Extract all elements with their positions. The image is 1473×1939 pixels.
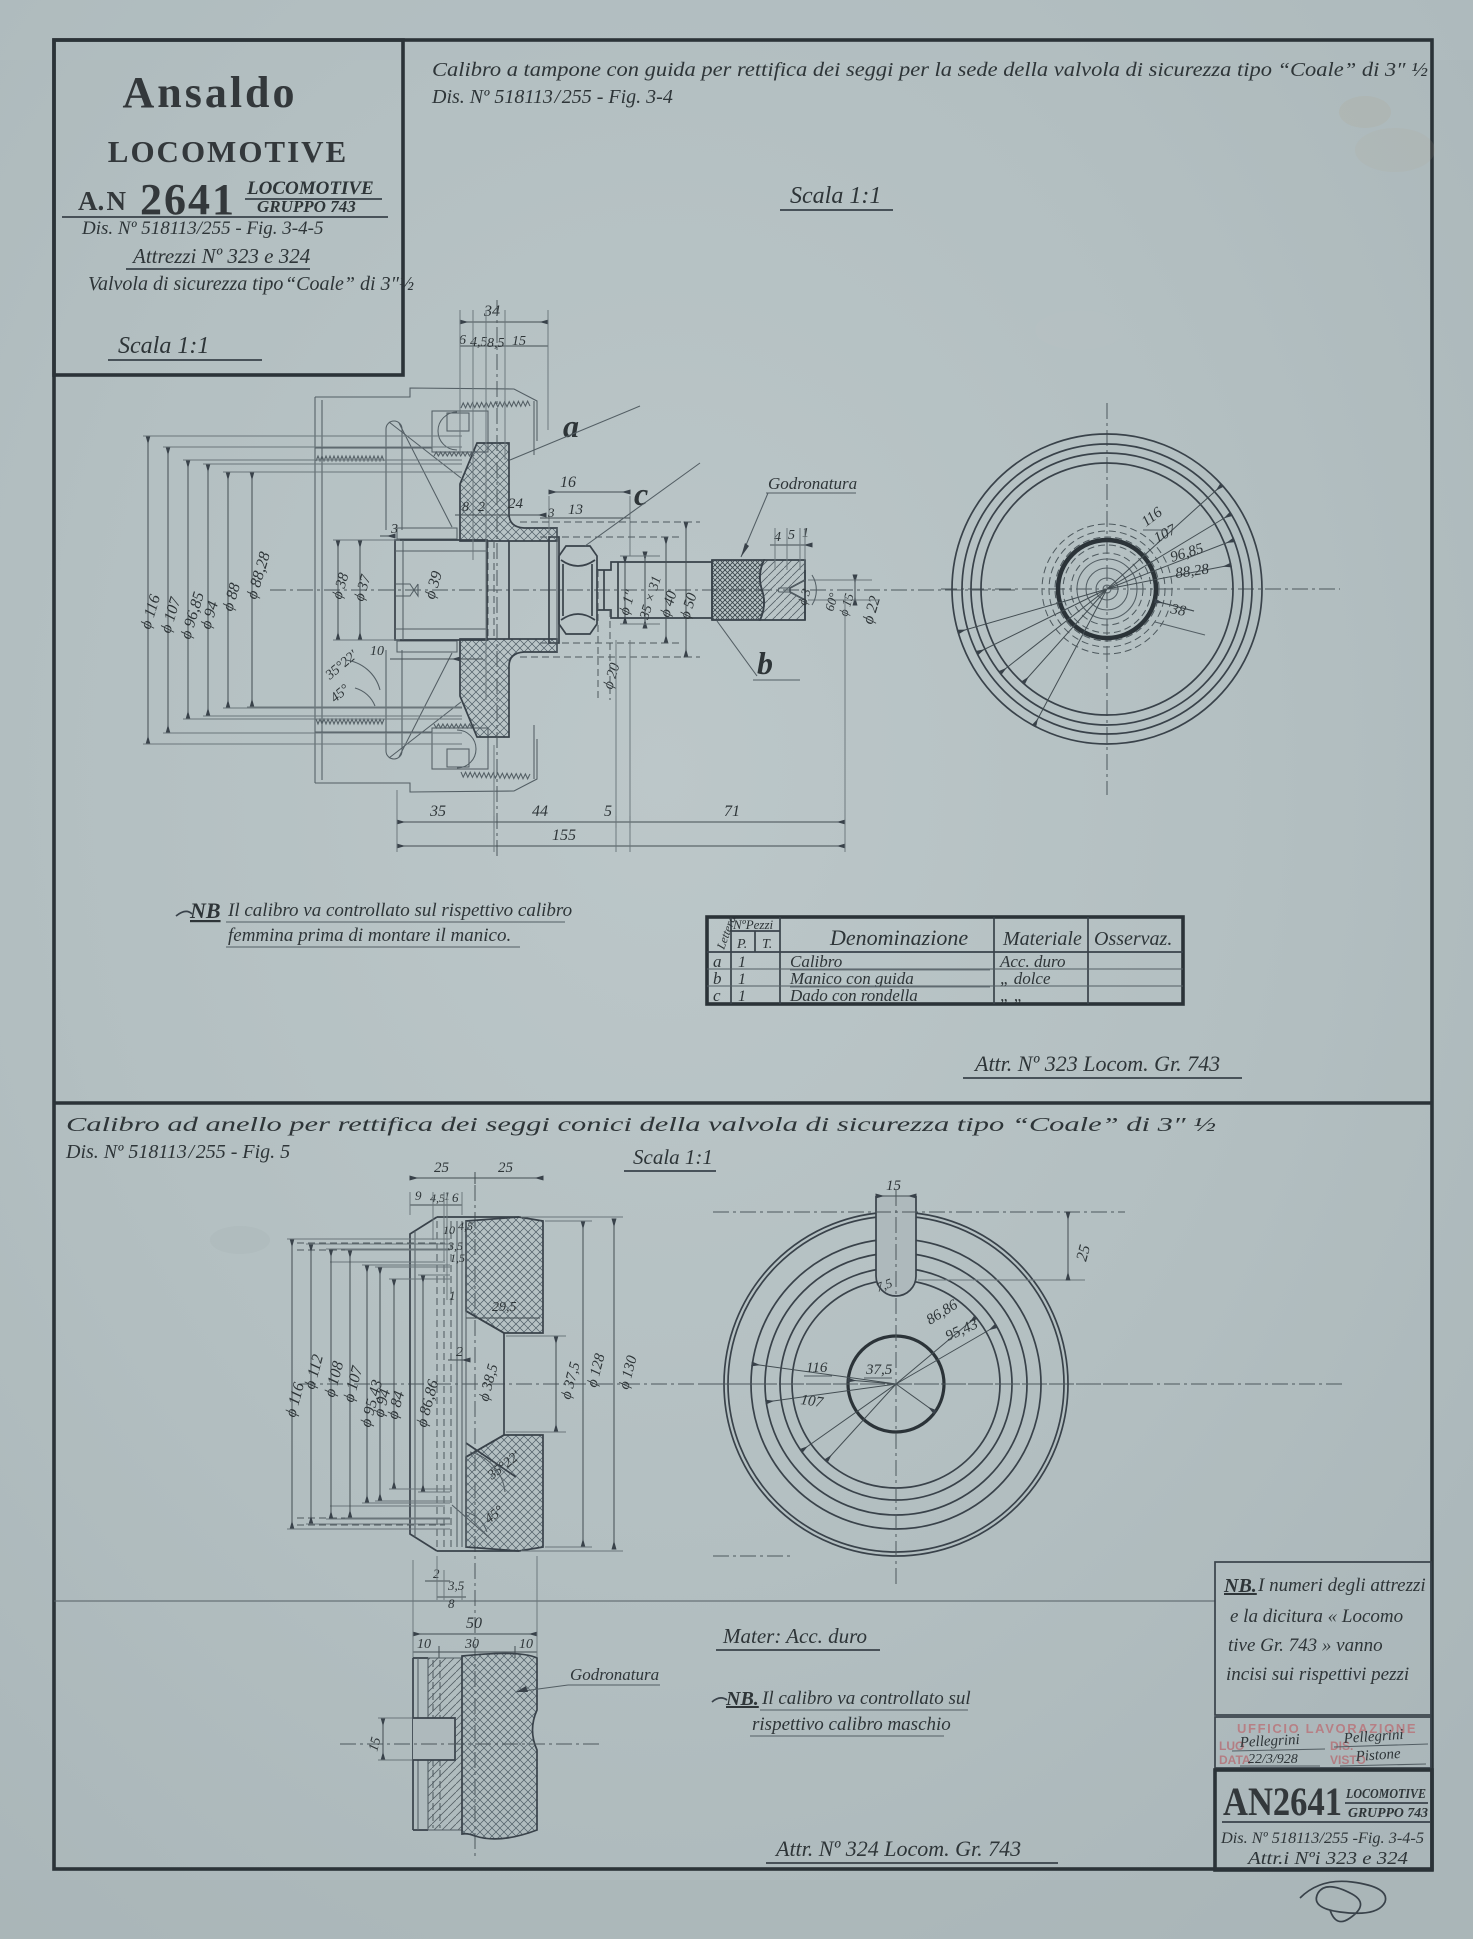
svg-text:GRUPPO 743: GRUPPO 743 [257, 197, 356, 216]
svg-text:5: 5 [788, 528, 795, 543]
svg-text:16: 16 [560, 474, 576, 491]
svg-text:Materiale: Materiale [1002, 928, 1082, 950]
svg-text:c: c [634, 476, 648, 512]
svg-text:1: 1 [738, 954, 746, 971]
svg-text:3: 3 [547, 505, 555, 520]
svg-text:25: 25 [434, 1160, 450, 1176]
svg-text:Valvola di sicurezza tipo “Coa: Valvola di sicurezza tipo “Coale” di 3″½ [88, 273, 414, 295]
svg-text:GRUPPO 743: GRUPPO 743 [1348, 1806, 1428, 1821]
svg-text:DATA: DATA [1219, 1753, 1251, 1767]
svg-text:6: 6 [452, 1190, 459, 1205]
svg-text:Dis. Nº 518113 / 255 - Fig. 3-: Dis. Nº 518113 / 255 - Fig. 3-4 [431, 86, 673, 108]
svg-text:116: 116 [806, 1360, 828, 1376]
svg-text:LOCOMOTIVE: LOCOMOTIVE [108, 134, 348, 169]
svg-text:Attr. Nº 324 Locom. Gr. 743: Attr. Nº 324 Locom. Gr. 743 [774, 1836, 1021, 1861]
svg-text:Calibro a tampone con guida pe: Calibro a tampone con guida per rettific… [432, 59, 1428, 81]
svg-text:LOCOMOTIVE: LOCOMOTIVE [246, 178, 374, 199]
svg-text:femmina prima di montare il ma: femmina prima di montare il manico. [228, 925, 511, 946]
svg-text:Calibro ad anello per rettific: Calibro ad anello per rettifica dei segg… [66, 1114, 1216, 1136]
svg-text:Attr. Nº 323 Locom. Gr. 743: Attr. Nº 323 Locom. Gr. 743 [973, 1051, 1220, 1076]
svg-text:Attr.i Nºi 323 e 324: Attr.i Nºi 323 e 324 [1247, 1848, 1408, 1868]
svg-text:NºPezzi: NºPezzi [732, 917, 774, 932]
svg-text:25: 25 [498, 1160, 514, 1176]
svg-text:Pellegrini: Pellegrini [1238, 1732, 1300, 1751]
svg-text:9: 9 [415, 1188, 422, 1203]
svg-text:107: 107 [799, 1392, 825, 1411]
svg-text:incisi sui rispettivi pezzi: incisi sui rispettivi pezzi [1226, 1664, 1409, 1685]
svg-text:c: c [713, 986, 721, 1005]
svg-text:Ansaldo: Ansaldo [122, 68, 297, 117]
svg-text:Osservaz.: Osservaz. [1094, 928, 1172, 950]
svg-text:29,5: 29,5 [492, 1300, 517, 1315]
svg-text:10: 10 [417, 1637, 431, 1652]
svg-text:15: 15 [512, 334, 526, 349]
svg-text:50: 50 [466, 1615, 482, 1632]
svg-text:e la dicitura « Locomo: e la dicitura « Locomo [1230, 1606, 1403, 1627]
svg-text:tive Gr. 743 » vanno: tive Gr. 743 » vanno [1228, 1635, 1383, 1656]
svg-text:T.: T. [762, 937, 772, 952]
svg-text:rispettivo calibro maschio: rispettivo calibro maschio [752, 1714, 951, 1735]
svg-text:Attrezzi Nº 323 e 324: Attrezzi Nº 323 e 324 [131, 244, 311, 268]
svg-text:1: 1 [738, 971, 746, 988]
svg-text:71: 71 [724, 803, 740, 820]
svg-text:24: 24 [508, 496, 524, 512]
svg-text:10: 10 [370, 644, 384, 659]
svg-text:10: 10 [443, 1223, 455, 1237]
svg-text:A. N: A. N [78, 186, 127, 216]
svg-text:„ „: „ „ [1000, 986, 1023, 1005]
svg-text:13: 13 [568, 502, 583, 518]
svg-text:Scala 1:1: Scala 1:1 [790, 183, 881, 209]
svg-text:4,5: 4,5 [458, 1219, 473, 1233]
svg-text:AN2641: AN2641 [1223, 1779, 1342, 1824]
svg-text:Pistone: Pistone [1354, 1746, 1401, 1765]
svg-text:4,5: 4,5 [430, 1191, 445, 1205]
svg-text:2: 2 [456, 1345, 463, 1360]
svg-text:LOCOMOTIVE: LOCOMOTIVE [1345, 1787, 1426, 1802]
svg-text:Dado con rondella: Dado con rondella [789, 986, 918, 1005]
svg-text:Godronatura: Godronatura [768, 474, 857, 493]
svg-text:5: 5 [604, 803, 612, 820]
svg-text:1: 1 [802, 526, 809, 541]
svg-text:22/3/928: 22/3/928 [1248, 1752, 1298, 1767]
svg-text:b: b [757, 645, 773, 681]
svg-text:I numeri degli attrezzi: I numeri degli attrezzi [1257, 1575, 1426, 1596]
svg-text:155: 155 [552, 827, 576, 844]
svg-text:3: 3 [390, 522, 398, 537]
svg-text:44: 44 [532, 803, 548, 820]
svg-text:Il calibro va controllato sul: Il calibro va controllato sul rispettivo… [227, 900, 572, 921]
svg-text:Scala 1:1: Scala 1:1 [633, 1145, 713, 1169]
svg-text:NB.: NB. [725, 1688, 759, 1710]
svg-text:1,5: 1,5 [450, 1251, 465, 1265]
svg-text:Godronatura: Godronatura [570, 1665, 659, 1684]
svg-text:35: 35 [429, 803, 446, 820]
svg-text:NB: NB [189, 898, 221, 923]
svg-text:15: 15 [886, 1178, 902, 1194]
svg-text:37,5: 37,5 [865, 1362, 893, 1378]
svg-text:2: 2 [433, 1566, 440, 1581]
svg-text:Scala 1:1: Scala 1:1 [118, 333, 209, 359]
svg-text:10: 10 [519, 1637, 533, 1652]
svg-text:2: 2 [478, 500, 485, 515]
svg-text:30: 30 [464, 1637, 479, 1652]
svg-text:Dis. Nº 518113 / 255 - Fig. 5: Dis. Nº 518113 / 255 - Fig. 5 [65, 1141, 290, 1163]
svg-text:8: 8 [462, 500, 469, 515]
svg-text:1: 1 [738, 988, 746, 1005]
svg-text:a: a [563, 408, 579, 444]
svg-text:Dis. Nº 518113/255 -Fig. 3-4-5: Dis. Nº 518113/255 -Fig. 3-4-5 [1220, 1830, 1424, 1847]
svg-text:8,5: 8,5 [487, 336, 505, 351]
svg-text:Dis. Nº 518113/255 - Fig. 3-4-: Dis. Nº 518113/255 - Fig. 3-4-5 [81, 218, 323, 239]
svg-text:P.: P. [736, 937, 747, 952]
svg-text:8: 8 [448, 1596, 455, 1611]
svg-text:Il calibro va controllato sul: Il calibro va controllato sul [761, 1688, 971, 1709]
svg-text:NB.: NB. [1223, 1575, 1257, 1597]
svg-text:Mater: Acc. duro: Mater: Acc. duro [722, 1624, 867, 1648]
svg-text:1: 1 [449, 1288, 456, 1303]
svg-text:Denominazione: Denominazione [829, 925, 968, 950]
